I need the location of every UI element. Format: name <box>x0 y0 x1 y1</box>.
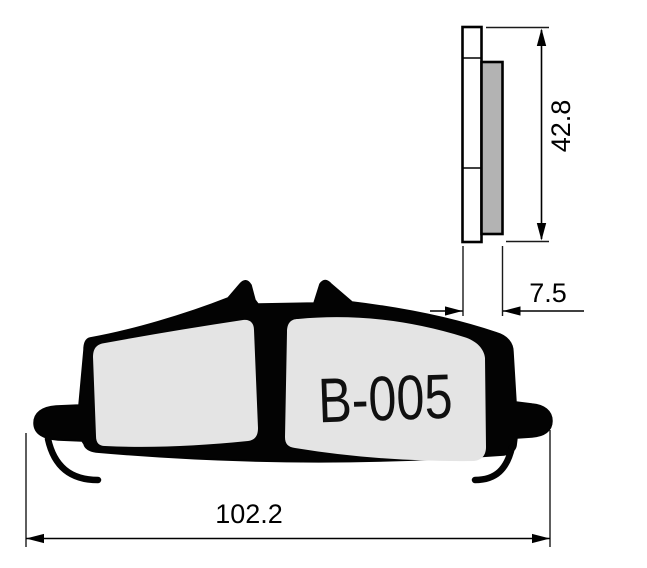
part-number-label: B-005 <box>317 361 454 436</box>
height-dimension-label: 42.8 <box>546 100 576 153</box>
drawing-svg: 42.8 7.5 B-005 <box>0 0 647 568</box>
front-view: B-005 <box>34 281 552 481</box>
side-view <box>463 27 503 242</box>
side-friction-material <box>482 62 503 234</box>
side-backplate <box>463 27 482 242</box>
brake-pad-technical-drawing: 42.8 7.5 B-005 <box>0 0 647 568</box>
width-dimension-label: 102.2 <box>215 499 283 529</box>
height-arrow-up-icon <box>537 29 546 47</box>
thickness-arrow-left-icon <box>503 306 521 315</box>
height-arrow-down-icon <box>537 223 546 241</box>
thickness-dimension-label: 7.5 <box>529 278 567 308</box>
dimension-thickness: 7.5 <box>430 246 584 316</box>
width-arrow-right-icon <box>532 534 550 543</box>
thickness-arrow-right-icon <box>445 306 463 315</box>
width-arrow-left-icon <box>26 534 44 543</box>
